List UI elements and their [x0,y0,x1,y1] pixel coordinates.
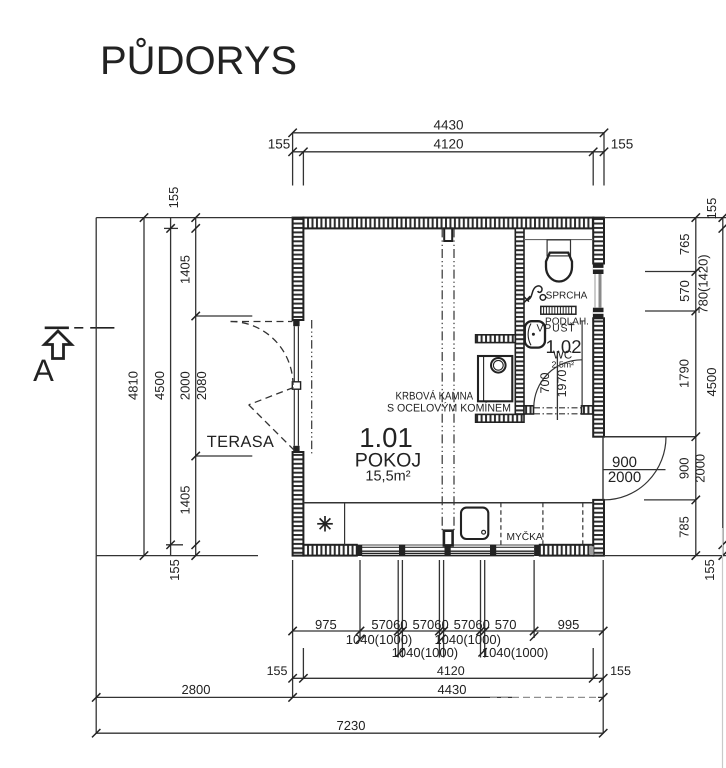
svg-text:570: 570 [371,617,393,632]
svg-text:2800: 2800 [182,682,211,697]
svg-text:1970: 1970 [555,370,569,398]
svg-text:4810: 4810 [126,371,141,400]
svg-text:4430: 4430 [438,682,467,697]
svg-text:2000: 2000 [177,371,192,400]
svg-text:4120: 4120 [433,137,463,152]
svg-text:570: 570 [495,617,517,632]
svg-text:15,5m²: 15,5m² [365,469,410,485]
svg-text:60: 60 [434,617,448,632]
svg-text:155: 155 [268,137,291,152]
svg-text:2080: 2080 [194,371,209,400]
svg-text:785: 785 [677,516,692,538]
svg-text:KRBOVÁ KAMNA: KRBOVÁ KAMNA [396,390,474,403]
svg-text:60: 60 [393,617,407,632]
svg-text:4430: 4430 [433,118,463,133]
svg-text:900: 900 [677,457,692,479]
svg-text:155: 155 [267,664,288,678]
svg-text:1405: 1405 [177,255,192,284]
svg-text:MYČKA: MYČKA [507,531,543,543]
svg-text:700: 700 [538,373,552,394]
svg-text:155: 155 [702,559,717,581]
svg-text:4500: 4500 [704,368,719,397]
svg-text:2,5m²: 2,5m² [552,360,575,370]
svg-text:2000: 2000 [693,454,708,483]
svg-text:A: A [33,353,54,388]
svg-text:7230: 7230 [337,718,366,733]
svg-text:995: 995 [558,617,580,632]
svg-text:TERASA: TERASA [207,433,275,451]
svg-text:4120: 4120 [437,664,465,678]
svg-text:2000: 2000 [608,469,641,486]
svg-text:780(1420): 780(1420) [696,254,711,313]
svg-text:1040(1000): 1040(1000) [482,645,549,660]
svg-text:570: 570 [413,617,435,632]
svg-text:155: 155 [610,664,631,678]
svg-text:155: 155 [166,187,181,209]
svg-text:155: 155 [704,198,719,220]
svg-text:VPUSŤ: VPUSŤ [536,322,575,335]
svg-text:570: 570 [454,617,476,632]
svg-text:PŮDORYS: PŮDORYS [100,37,297,83]
svg-text:570: 570 [677,280,692,302]
svg-text:155: 155 [167,559,182,581]
svg-text:1.01: 1.01 [359,422,413,453]
svg-text:155: 155 [611,137,634,152]
svg-text:1405: 1405 [177,486,192,515]
svg-text:60: 60 [475,617,489,632]
svg-text:S OCELOVÝM KOMÍNEM: S OCELOVÝM KOMÍNEM [387,401,511,414]
svg-text:1040(1000): 1040(1000) [392,645,459,660]
svg-text:1790: 1790 [677,359,692,388]
svg-text:4500: 4500 [152,371,167,400]
svg-text:765: 765 [677,233,692,255]
svg-text:975: 975 [315,617,337,632]
svg-text:SPRCHA: SPRCHA [546,290,588,301]
